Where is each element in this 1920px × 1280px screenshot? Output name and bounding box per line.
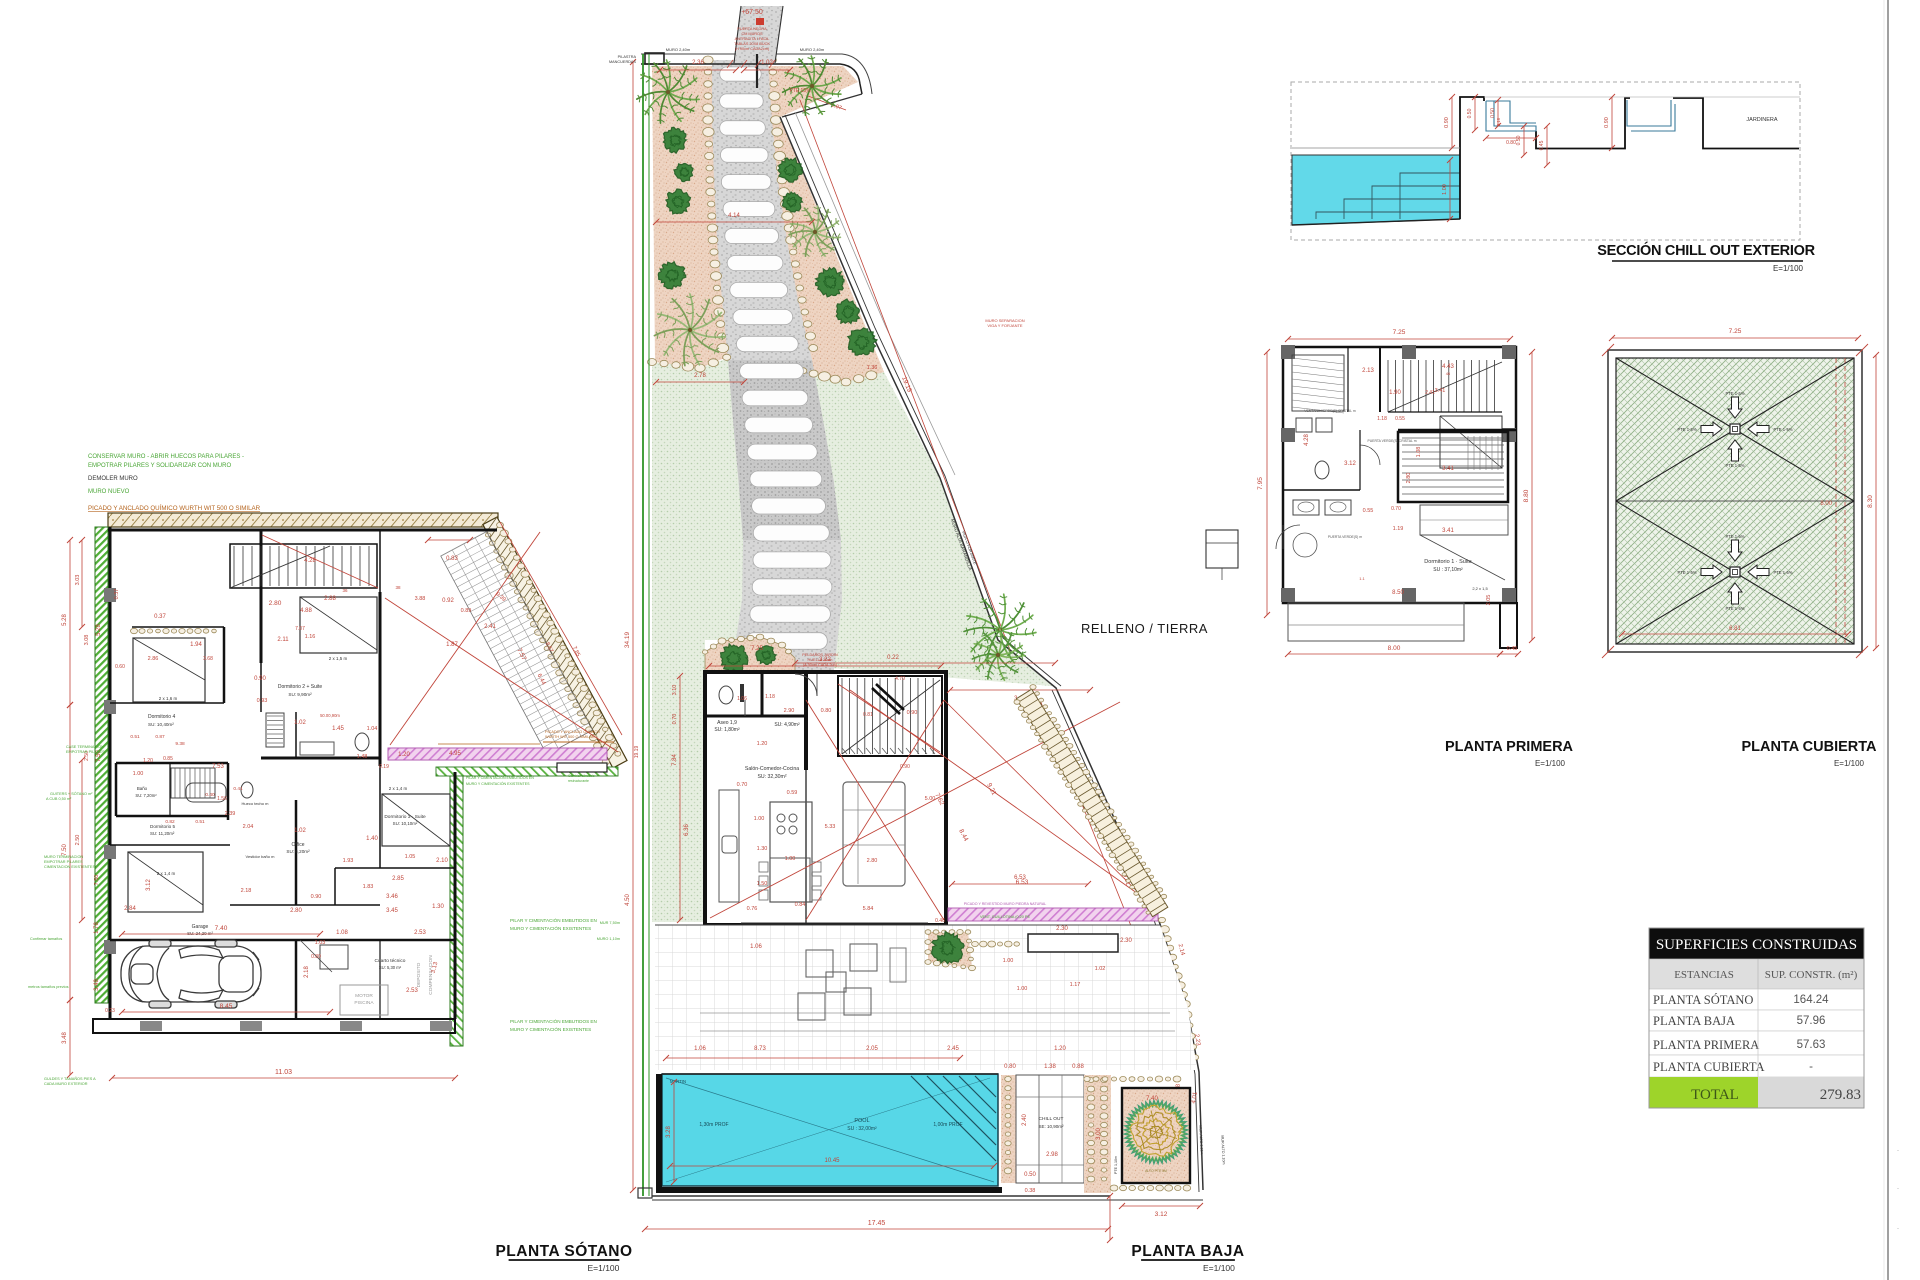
svg-text:MURO Y CIMENTACIÓN EXISTENTES: MURO Y CIMENTACIÓN EXISTENTES	[466, 781, 530, 786]
svg-text:·: ·	[1897, 1148, 1899, 1154]
svg-text:1.02: 1.02	[1095, 966, 1106, 972]
svg-text:1.04: 1.04	[367, 726, 378, 732]
svg-text:2.53: 2.53	[406, 988, 418, 994]
svg-text:3.48: 3.48	[62, 1032, 68, 1044]
svg-text:34.19: 34.19	[624, 631, 631, 648]
svg-text:A CUB 0,50 m²: A CUB 0,50 m²	[46, 797, 72, 801]
svg-text:0.90: 0.90	[311, 894, 322, 900]
svg-text:PLANTA BAJA: PLANTA BAJA	[1653, 1014, 1735, 1028]
svg-text:SE: 10,90m²: SE: 10,90m²	[1038, 1124, 1064, 1129]
svg-text:1,00m PROF: 1,00m PROF	[933, 1122, 962, 1128]
svg-text:PILASTRA: PILASTRA	[618, 55, 637, 59]
svg-text:2.90: 2.90	[784, 708, 795, 714]
svg-text:4.28: 4.28	[1304, 434, 1310, 446]
svg-text:0.81: 0.81	[863, 712, 873, 718]
svg-text:1.93: 1.93	[343, 858, 354, 864]
svg-text:VENTANA VERDE(S) CRISTAL m: VENTANA VERDE(S) CRISTAL m	[1304, 409, 1356, 413]
svg-text:3.28: 3.28	[666, 1126, 672, 1138]
svg-text:3.12: 3.12	[1344, 461, 1356, 467]
svg-text:1.00: 1.00	[1017, 986, 1028, 992]
svg-text:2.40: 2.40	[1022, 1114, 1028, 1126]
svg-text:5.00: 5.00	[925, 796, 936, 802]
svg-text:PTE 1-5%: PTE 1-5%	[1677, 427, 1696, 432]
svg-text:5.33: 5.33	[825, 824, 836, 830]
svg-text:2.80: 2.80	[1406, 473, 1412, 484]
svg-text:2 x 1,4 m: 2 x 1,4 m	[389, 786, 408, 791]
svg-text:3.41: 3.41	[1442, 528, 1454, 534]
svg-text:0.83: 0.83	[446, 556, 458, 562]
svg-text:CASE TERMINACION: CASE TERMINACION	[66, 745, 104, 749]
svg-text:1.00: 1.00	[1003, 958, 1014, 964]
svg-text:PICADO Y ANCLADO QUÍMICO: PICADO Y ANCLADO QUÍMICO	[545, 730, 600, 734]
svg-text:Baño: Baño	[137, 786, 148, 791]
svg-text:0.70: 0.70	[1391, 506, 1401, 512]
svg-text:3.12: 3.12	[1155, 1211, 1168, 1218]
svg-text:DEMOLER MURO: DEMOLER MURO	[88, 476, 138, 482]
svg-text:PICADO Y ANCLADO QUÍMICO WURTH: PICADO Y ANCLADO QUÍMICO WURTH WIT 500 O…	[88, 505, 261, 512]
svg-text:PUERTA VERDE(S) CRISTAL m: PUERTA VERDE(S) CRISTAL m	[1367, 439, 1416, 443]
svg-text:MOTOR: MOTOR	[355, 993, 373, 999]
svg-text:0.50: 0.50	[1467, 108, 1473, 118]
svg-text:4.88: 4.88	[300, 608, 312, 614]
svg-text:2.80: 2.80	[867, 858, 878, 864]
svg-text:TABLAS 20X8 BUCK: TABLAS 20X8 BUCK	[734, 42, 770, 46]
svg-text:Confirmar tamaños: Confirmar tamaños	[30, 937, 62, 941]
svg-text:8.00: 8.00	[1388, 645, 1401, 652]
svg-text:5.28: 5.28	[96, 624, 102, 636]
svg-text:17.45: 17.45	[868, 1220, 886, 1227]
svg-text:1.78: 1.78	[94, 922, 100, 934]
svg-text:2.45: 2.45	[947, 1046, 959, 1052]
svg-text:0.19: 0.19	[379, 764, 389, 770]
svg-text:1.56: 1.56	[217, 796, 227, 802]
svg-text:2.41: 2.41	[484, 624, 496, 630]
svg-text:7.50: 7.50	[62, 844, 68, 856]
svg-text:7.25: 7.25	[751, 646, 763, 652]
svg-text:MURO 2,40m: MURO 2,40m	[666, 47, 691, 52]
svg-text:Dormitorio 3 · Suite: Dormitorio 3 · Suite	[384, 814, 426, 820]
svg-text:4.70: 4.70	[895, 676, 905, 682]
svg-text:GUITERS + SÓTANO m²: GUITERS + SÓTANO m²	[50, 791, 93, 796]
svg-text:E=1/100: E=1/100	[587, 1263, 619, 1273]
svg-text:0.37: 0.37	[154, 614, 166, 620]
svg-text:Cambiar alineado: Cambiar alineado	[568, 774, 595, 778]
svg-text:1.50: 1.50	[757, 881, 768, 887]
svg-text:GULDES Y TAMAÑOS PIES A: GULDES Y TAMAÑOS PIES A	[44, 1076, 96, 1081]
svg-text:+67.50: +67.50	[741, 9, 763, 16]
svg-text:0.45: 0.45	[1507, 646, 1518, 652]
svg-text:PILAR Y CIMENTACIÓN EMBUTIDOS: PILAR Y CIMENTACIÓN EMBUTIDOS EN	[510, 1018, 597, 1024]
svg-text:E=1/100: E=1/100	[1203, 1263, 1235, 1273]
svg-text:E=1/100: E=1/100	[1535, 759, 1566, 768]
svg-text:SU: 1,80m²: SU: 1,80m²	[714, 727, 740, 733]
svg-text:1.40: 1.40	[366, 836, 378, 842]
svg-text:EMPOTRAR PILARES Y SOLIDARIZAR: EMPOTRAR PILARES Y SOLIDARIZAR CON MURO	[88, 463, 231, 469]
svg-text:SUP. CONSTR. (m²): SUP. CONSTR. (m²)	[1765, 969, 1858, 981]
svg-text:PLANTA BAJA: PLANTA BAJA	[1131, 1243, 1244, 1260]
svg-text:2.84: 2.84	[124, 906, 136, 912]
svg-text:2.36: 2.36	[692, 60, 704, 66]
svg-text:4.50: 4.50	[625, 894, 631, 906]
svg-text:38: 38	[395, 585, 401, 590]
svg-text:2.05: 2.05	[866, 1046, 878, 1052]
svg-text:PLANTA PRIMERA: PLANTA PRIMERA	[1445, 739, 1574, 755]
svg-text:E=1/100: E=1/100	[1834, 759, 1865, 768]
svg-text:0.80: 0.80	[1004, 1064, 1016, 1070]
svg-text:JARDINERA: JARDINERA	[1746, 117, 1778, 123]
svg-text:EMPOTRAR PILARES: EMPOTRAR PILARES	[66, 750, 105, 754]
svg-text:1.94: 1.94	[190, 642, 202, 648]
svg-text:1.17: 1.17	[1070, 982, 1081, 988]
svg-text:PTE 1-5%: PTE 1-5%	[1677, 570, 1696, 575]
svg-text:0.89: 0.89	[461, 608, 472, 614]
svg-text:4.14: 4.14	[728, 213, 740, 219]
svg-text:0.60: 0.60	[115, 664, 125, 670]
svg-text:0.23: 0.23	[105, 1008, 115, 1014]
svg-text:PLANTA PRIMERA: PLANTA PRIMERA	[1653, 1038, 1759, 1052]
svg-text:PTE 1-5%: PTE 1-5%	[1773, 427, 1792, 432]
svg-text:0.80: 0.80	[1506, 140, 1516, 146]
svg-text:3.10: 3.10	[672, 685, 678, 696]
svg-text:1,30m PROF: 1,30m PROF	[699, 1122, 728, 1128]
svg-text:2.80: 2.80	[269, 600, 282, 607]
svg-text:Dormitorio 4: Dormitorio 4	[148, 714, 175, 720]
svg-text:ESTANCIAS: ESTANCIAS	[1674, 969, 1734, 981]
svg-text:7.50: 7.50	[94, 875, 100, 886]
svg-text:PUERTA NEGRA: PUERTA NEGRA	[737, 27, 767, 31]
svg-text:MURO Y CIMENTACIÓN EXISTENTES: MURO Y CIMENTACIÓN EXISTENTES	[510, 1026, 591, 1032]
svg-text:8.80: 8.80	[1523, 489, 1530, 502]
svg-text:SU: 10,10m²: SU: 10,10m²	[393, 821, 418, 826]
svg-text:Cuarto técnico: Cuarto técnico	[375, 958, 406, 964]
svg-text:1.06: 1.06	[750, 944, 762, 950]
svg-text:SECCIÓN CHILL OUT EXTERIOR: SECCIÓN CHILL OUT EXTERIOR	[1597, 241, 1815, 259]
svg-text:6.53: 6.53	[1014, 875, 1026, 881]
svg-text:1.03: 1.03	[315, 940, 326, 946]
svg-text:2.10: 2.10	[436, 858, 448, 864]
svg-text:36: 36	[342, 588, 348, 593]
svg-text:1.16: 1.16	[305, 634, 316, 640]
svg-text:ALTO PTE 5M: ALTO PTE 5M	[1145, 1169, 1167, 1173]
svg-text:MURO TERMINACION: MURO TERMINACION	[44, 855, 83, 859]
svg-text:Salón-Comedor-Cocina: Salón-Comedor-Cocina	[745, 766, 799, 772]
svg-text:3.45: 3.45	[386, 908, 398, 914]
svg-text:7.95: 7.95	[1257, 477, 1264, 490]
svg-text:PUERTA VERDE(S) m: PUERTA VERDE(S) m	[1328, 535, 1362, 539]
svg-text:1.05: 1.05	[405, 854, 416, 860]
svg-text:MURO NUEVO: MURO NUEVO	[88, 489, 130, 495]
svg-text:3.46: 3.46	[386, 894, 398, 900]
svg-text:1.83: 1.83	[363, 884, 374, 890]
svg-text:7.25: 7.25	[1729, 328, 1742, 335]
svg-text:10.45: 10.45	[824, 1158, 840, 1164]
svg-text:0.85: 0.85	[163, 756, 173, 762]
svg-text:0.76: 0.76	[747, 906, 758, 912]
svg-text:1.90: 1.90	[1389, 390, 1401, 396]
svg-text:Aseo 1,9: Aseo 1,9	[717, 720, 737, 726]
svg-text:(A 90cm CADA 2un): (A 90cm CADA 2un)	[803, 663, 838, 667]
svg-text:1.02: 1.02	[761, 60, 773, 66]
svg-text:0.50: 0.50	[1490, 108, 1496, 118]
svg-text:8.30: 8.30	[1867, 495, 1874, 508]
svg-text:3.03: 3.03	[75, 575, 81, 586]
svg-text:VIGA Y FORJANTE: VIGA Y FORJANTE	[987, 323, 1023, 328]
svg-text:1.20: 1.20	[1054, 1046, 1066, 1052]
svg-text:SUPERFICIES CONSTRUIDAS: SUPERFICIES CONSTRUIDAS	[1656, 937, 1857, 953]
svg-text:PILAR Y CIMENTACIÓN EMBUTIDOS: PILAR Y CIMENTACIÓN EMBUTIDOS EN	[466, 775, 534, 780]
svg-text:2.41: 2.41	[1425, 390, 1435, 396]
svg-text:1.36: 1.36	[867, 365, 878, 371]
svg-text:E=1/100: E=1/100	[1773, 264, 1804, 273]
svg-text:Vestidor baño m: Vestidor baño m	[246, 854, 276, 859]
svg-text:PTE 1,10m: PTE 1,10m	[1114, 1156, 1118, 1174]
svg-text:2 x 1,4 m: 2 x 1,4 m	[157, 871, 176, 876]
svg-text:3.00: 3.00	[1096, 1128, 1102, 1140]
svg-text:PTE 1-5%: PTE 1-5%	[1725, 391, 1744, 396]
svg-text:4.43: 4.43	[1442, 364, 1454, 370]
svg-text:·: ·	[1897, 1186, 1899, 1192]
svg-text:1.1: 1.1	[1359, 576, 1365, 581]
svg-text:7.40: 7.40	[1146, 1096, 1158, 1102]
svg-text:PLANTA CUBIERTA: PLANTA CUBIERTA	[1741, 739, 1877, 755]
svg-text:1.00: 1.00	[785, 856, 796, 862]
svg-text:PILAR Y CIMENTACIÓN EMBUTIDOS: PILAR Y CIMENTACIÓN EMBUTIDOS EN	[510, 917, 597, 923]
svg-text:PTE 1-5%: PTE 1-5%	[1725, 463, 1744, 468]
svg-text:SU: 32,30m²: SU: 32,30m²	[757, 774, 786, 780]
svg-text:SU: 9,90m²: SU: 9,90m²	[288, 692, 312, 697]
svg-text:0.82: 0.82	[165, 819, 175, 825]
svg-text:3.41: 3.41	[1442, 466, 1454, 472]
svg-text:0.80: 0.80	[311, 954, 321, 960]
svg-text:2.78: 2.78	[694, 373, 706, 379]
svg-text:PTE 1-5%: PTE 1-5%	[1725, 534, 1744, 539]
svg-text:1.45: 1.45	[332, 726, 344, 732]
svg-text:SU: 24,20 m²: SU: 24,20 m²	[187, 931, 213, 936]
svg-text:3.41: 3.41	[1435, 388, 1446, 394]
svg-text:0.55: 0.55	[1395, 416, 1405, 422]
svg-text:6.36: 6.36	[684, 824, 690, 836]
svg-text:2 x 1,6 m: 2 x 1,6 m	[159, 696, 178, 701]
svg-text:WURTH WIT 500 O SIMILAR: WURTH WIT 500 O SIMILAR	[545, 735, 595, 739]
svg-text:CIMENTACION EXISTENTES: CIMENTACION EXISTENTES	[44, 865, 95, 869]
svg-text:PLANTA CUBIERTA: PLANTA CUBIERTA	[1653, 1060, 1765, 1074]
svg-text:3.12: 3.12	[146, 879, 152, 891]
svg-text:0.90: 0.90	[1444, 117, 1450, 128]
svg-text:0.50: 0.50	[1024, 1172, 1036, 1178]
svg-text:3.22: 3.22	[819, 657, 831, 663]
svg-text:0.80: 0.80	[821, 708, 832, 714]
svg-text:SU : 32,00m²: SU : 32,00m²	[847, 1126, 877, 1132]
svg-text:DEPOSITO: DEPOSITO	[416, 962, 422, 987]
svg-text:PISCINA: PISCINA	[354, 1000, 374, 1006]
svg-text:2.50: 2.50	[75, 835, 81, 846]
svg-text:2.18: 2.18	[304, 966, 310, 978]
svg-text:0.93: 0.93	[257, 698, 268, 704]
svg-text:5.28: 5.28	[62, 614, 68, 626]
svg-text:1.20: 1.20	[398, 752, 410, 758]
svg-text:2.53: 2.53	[414, 930, 426, 936]
svg-text:MURO 1,10m: MURO 1,10m	[597, 937, 620, 941]
svg-text:3.08: 3.08	[84, 635, 90, 646]
svg-text:0.38: 0.38	[1025, 1188, 1036, 1194]
svg-text:Garage: Garage	[192, 924, 209, 930]
svg-text:0.90: 0.90	[1604, 117, 1610, 128]
svg-text:Dormitorio 2 + Suite: Dormitorio 2 + Suite	[278, 684, 323, 690]
svg-text:0.55: 0.55	[1363, 508, 1374, 514]
svg-text:MURO Y CIMENTACIÓN EXISTENTES: MURO Y CIMENTACIÓN EXISTENTES	[510, 925, 591, 931]
svg-text:6.81: 6.81	[1729, 626, 1741, 632]
svg-text:2,2 x 1,5: 2,2 x 1,5	[1472, 586, 1488, 591]
svg-text:0.90: 0.90	[900, 764, 910, 770]
svg-text:PTE 15%: PTE 15%	[789, 88, 811, 94]
svg-text:50.00,90m: 50.00,90m	[320, 713, 340, 718]
svg-text:9.38: 9.38	[175, 741, 185, 747]
svg-text:8.00: 8.00	[1820, 501, 1832, 507]
svg-text:0.90: 0.90	[907, 710, 918, 716]
svg-text:1.18: 1.18	[765, 694, 775, 700]
svg-text:57.96: 57.96	[1797, 1015, 1826, 1027]
svg-text:1.30: 1.30	[432, 904, 444, 910]
svg-text:57.63: 57.63	[1797, 1039, 1826, 1051]
svg-text:2.86: 2.86	[148, 656, 159, 662]
svg-text:2.80: 2.80	[290, 908, 302, 914]
svg-text:1.30: 1.30	[757, 846, 768, 852]
svg-text:0.40: 0.40	[205, 792, 215, 798]
svg-text:·: ·	[1897, 1226, 1899, 1232]
svg-text:46: 46	[1446, 371, 1451, 376]
svg-text:Office: Office	[292, 842, 305, 848]
svg-text:1.08: 1.08	[336, 930, 348, 936]
svg-text:1.48: 1.48	[357, 754, 368, 760]
svg-text:0.92: 0.92	[442, 598, 454, 604]
svg-text:7.25: 7.25	[1393, 329, 1406, 336]
svg-text:2.98: 2.98	[1046, 1152, 1058, 1158]
svg-text:1.87: 1.87	[446, 642, 458, 648]
svg-text:0.22: 0.22	[887, 655, 899, 661]
svg-text:2.05: 2.05	[1486, 595, 1492, 606]
svg-text:metros tamaños previos: metros tamaños previos	[28, 985, 69, 989]
svg-text:SU : 37,10m²: SU : 37,10m²	[1433, 567, 1463, 573]
svg-text:2.18: 2.18	[241, 888, 252, 894]
svg-text:EMPOTRAR PILARES: EMPOTRAR PILARES	[44, 860, 83, 864]
svg-text:SU: 10,40m²: SU: 10,40m²	[148, 722, 174, 727]
svg-text:1.02: 1.02	[294, 720, 306, 726]
svg-text:SU: 7,20m²: SU: 7,20m²	[135, 793, 157, 798]
svg-text:1.00: 1.00	[133, 771, 144, 777]
svg-text:2.30: 2.30	[1120, 938, 1132, 944]
svg-text:1.06: 1.06	[694, 1046, 706, 1052]
svg-text:7.40: 7.40	[215, 925, 228, 932]
svg-text:0.50: 0.50	[1516, 135, 1522, 145]
svg-text:279.83: 279.83	[1820, 1087, 1861, 1103]
svg-text:0.37: 0.37	[114, 589, 120, 600]
svg-text:MANCUERDAS: MANCUERDAS	[609, 60, 636, 64]
svg-text:1.19: 1.19	[1393, 526, 1404, 532]
svg-text:4.28: 4.28	[304, 558, 316, 564]
svg-text:3.88: 3.88	[415, 596, 426, 602]
svg-text:0.59: 0.59	[787, 790, 798, 796]
svg-text:7.84: 7.84	[672, 754, 678, 766]
svg-text:2.30: 2.30	[1056, 926, 1068, 932]
svg-text:COMPENSACION: COMPENSACION	[428, 955, 434, 995]
svg-text:PICADO Y REVESTIDO MURO PIEDRA: PICADO Y REVESTIDO MURO PIEDRA NATURAL	[964, 902, 1046, 906]
svg-text:1.06: 1.06	[737, 696, 747, 702]
svg-text:7.07: 7.07	[295, 626, 305, 632]
svg-text:1.18: 1.18	[1377, 416, 1387, 422]
svg-text:1.02: 1.02	[294, 828, 306, 834]
svg-text:CM MUROS: CM MUROS	[741, 32, 763, 36]
svg-text:0.51: 0.51	[130, 734, 140, 740]
svg-text:3.68: 3.68	[203, 656, 213, 662]
svg-text:PTE 1-5%: PTE 1-5%	[1725, 606, 1744, 611]
svg-text:PTE 1-5%: PTE 1-5%	[1773, 570, 1792, 575]
svg-text:POOL: POOL	[854, 1118, 869, 1124]
svg-text:restructurante: restructurante	[568, 779, 589, 783]
svg-text:0.41: 0.41	[233, 786, 243, 792]
svg-text:RELLENO / TIERRA: RELLENO / TIERRA	[1081, 621, 1208, 636]
svg-text:0.90: 0.90	[254, 676, 266, 682]
svg-text:8.50: 8.50	[1392, 590, 1404, 596]
svg-text:1.00: 1.00	[1442, 184, 1448, 195]
svg-text:2.85: 2.85	[392, 876, 404, 882]
svg-text:0.70: 0.70	[672, 714, 678, 725]
svg-text:Dormitorio 1 · Suite: Dormitorio 1 · Suite	[1424, 559, 1471, 565]
svg-text:0.46: 0.46	[935, 918, 945, 924]
svg-text:5.84: 5.84	[863, 906, 874, 912]
svg-text:0.88: 0.88	[1072, 1064, 1084, 1070]
svg-text:0.51: 0.51	[195, 819, 205, 825]
svg-text:CHILL OUT: CHILL OUT	[1039, 1116, 1064, 1122]
svg-text:Hueco techo m: Hueco techo m	[242, 801, 270, 806]
svg-text:4.95: 4.95	[449, 751, 461, 757]
svg-text:(H 90cm CADA2cm): (H 90cm CADA2cm)	[735, 47, 770, 51]
svg-text:1.20: 1.20	[143, 758, 153, 764]
svg-text:19.19: 19.19	[634, 746, 640, 759]
svg-text:MURO 2,40m: MURO 2,40m	[800, 47, 825, 52]
svg-text:0.87: 0.87	[155, 734, 165, 740]
svg-text:2.11: 2.11	[277, 637, 289, 643]
svg-text:CADA MURO EXTERIOR: CADA MURO EXTERIOR	[44, 1082, 88, 1086]
svg-text:TOTAL: TOTAL	[1691, 1087, 1739, 1103]
svg-text:0.16: 0.16	[1496, 117, 1501, 126]
svg-text:164.24: 164.24	[1793, 994, 1829, 1006]
svg-text:CONSERVAR MURO - ABRIR HUECOS: CONSERVAR MURO - ABRIR HUECOS PARA PILAR…	[88, 454, 244, 460]
svg-text:2.04: 2.04	[243, 824, 254, 830]
svg-text:SU: 4,90m²: SU: 4,90m²	[774, 722, 800, 728]
svg-text:3.48: 3.48	[94, 979, 100, 991]
svg-text:0.84: 0.84	[795, 902, 806, 908]
svg-text:0.70: 0.70	[737, 782, 748, 788]
svg-text:ANTRACITA I FACIL: ANTRACITA I FACIL	[735, 37, 770, 41]
svg-text:PLANTA SÓTANO: PLANTA SÓTANO	[495, 1242, 632, 1260]
svg-text:2.88: 2.88	[324, 596, 336, 602]
svg-text:SU: 6,20m²: SU: 6,20m²	[286, 849, 310, 854]
svg-text:PLANTA SÓTANO: PLANTA SÓTANO	[1653, 993, 1753, 1007]
svg-text:1.00: 1.00	[754, 816, 765, 822]
svg-text:1.38: 1.38	[1044, 1064, 1056, 1070]
svg-text:MUR 7,50m: MUR 7,50m	[600, 921, 620, 925]
svg-text:1.20: 1.20	[757, 741, 768, 747]
svg-text:2.13: 2.13	[1362, 368, 1374, 374]
svg-text:2 x 1,5 m: 2 x 1,5 m	[329, 656, 348, 661]
svg-text:8.45: 8.45	[220, 1003, 233, 1010]
svg-text:-: -	[1809, 1061, 1813, 1073]
svg-text:1.08: 1.08	[1416, 447, 1422, 458]
svg-text:11.03: 11.03	[275, 1069, 292, 1076]
svg-text:8.73: 8.73	[754, 1046, 766, 1052]
svg-text:0.45: 0.45	[1539, 140, 1545, 150]
svg-text:2.39: 2.39	[225, 811, 236, 817]
